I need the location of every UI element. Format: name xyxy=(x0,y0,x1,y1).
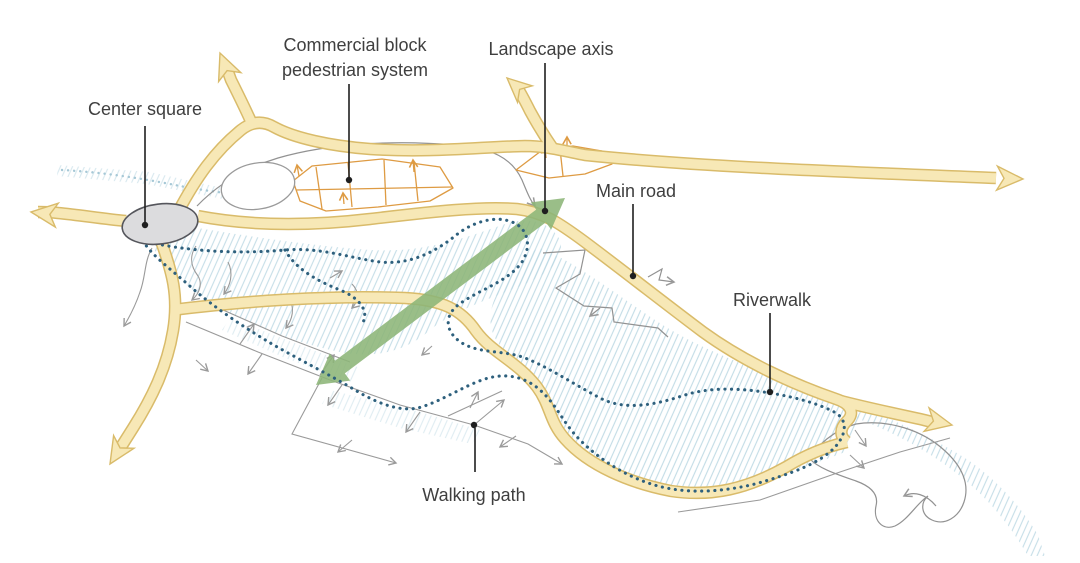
label-main-road: Main road xyxy=(596,179,676,204)
wetland-patch-b xyxy=(322,390,480,444)
label-commercial-block: Commercial block pedestrian system xyxy=(282,33,428,83)
road-arrow-east-icon xyxy=(997,166,1024,191)
label-commercial-block-line2: pedestrian system xyxy=(282,58,428,83)
label-riverwalk: Riverwalk xyxy=(733,288,811,313)
leader-dot-walking-path xyxy=(471,422,477,428)
leader-dot-landscape-axis xyxy=(542,208,548,214)
label-walking-path: Walking path xyxy=(422,483,525,508)
site-plan-canvas xyxy=(0,0,1080,563)
label-center-square: Center square xyxy=(88,97,202,122)
label-landscape-axis: Landscape axis xyxy=(488,37,613,62)
leader-dot-commercial-block xyxy=(346,177,352,183)
label-commercial-block-line1: Commercial block xyxy=(282,33,428,58)
leader-dot-riverwalk xyxy=(767,389,773,395)
leader-dot-center-square xyxy=(142,222,148,228)
site-plan-diagram: Center square Commercial block pedestria… xyxy=(0,0,1080,563)
leader-dot-main-road xyxy=(630,273,636,279)
plaza-ellipse xyxy=(218,157,299,215)
